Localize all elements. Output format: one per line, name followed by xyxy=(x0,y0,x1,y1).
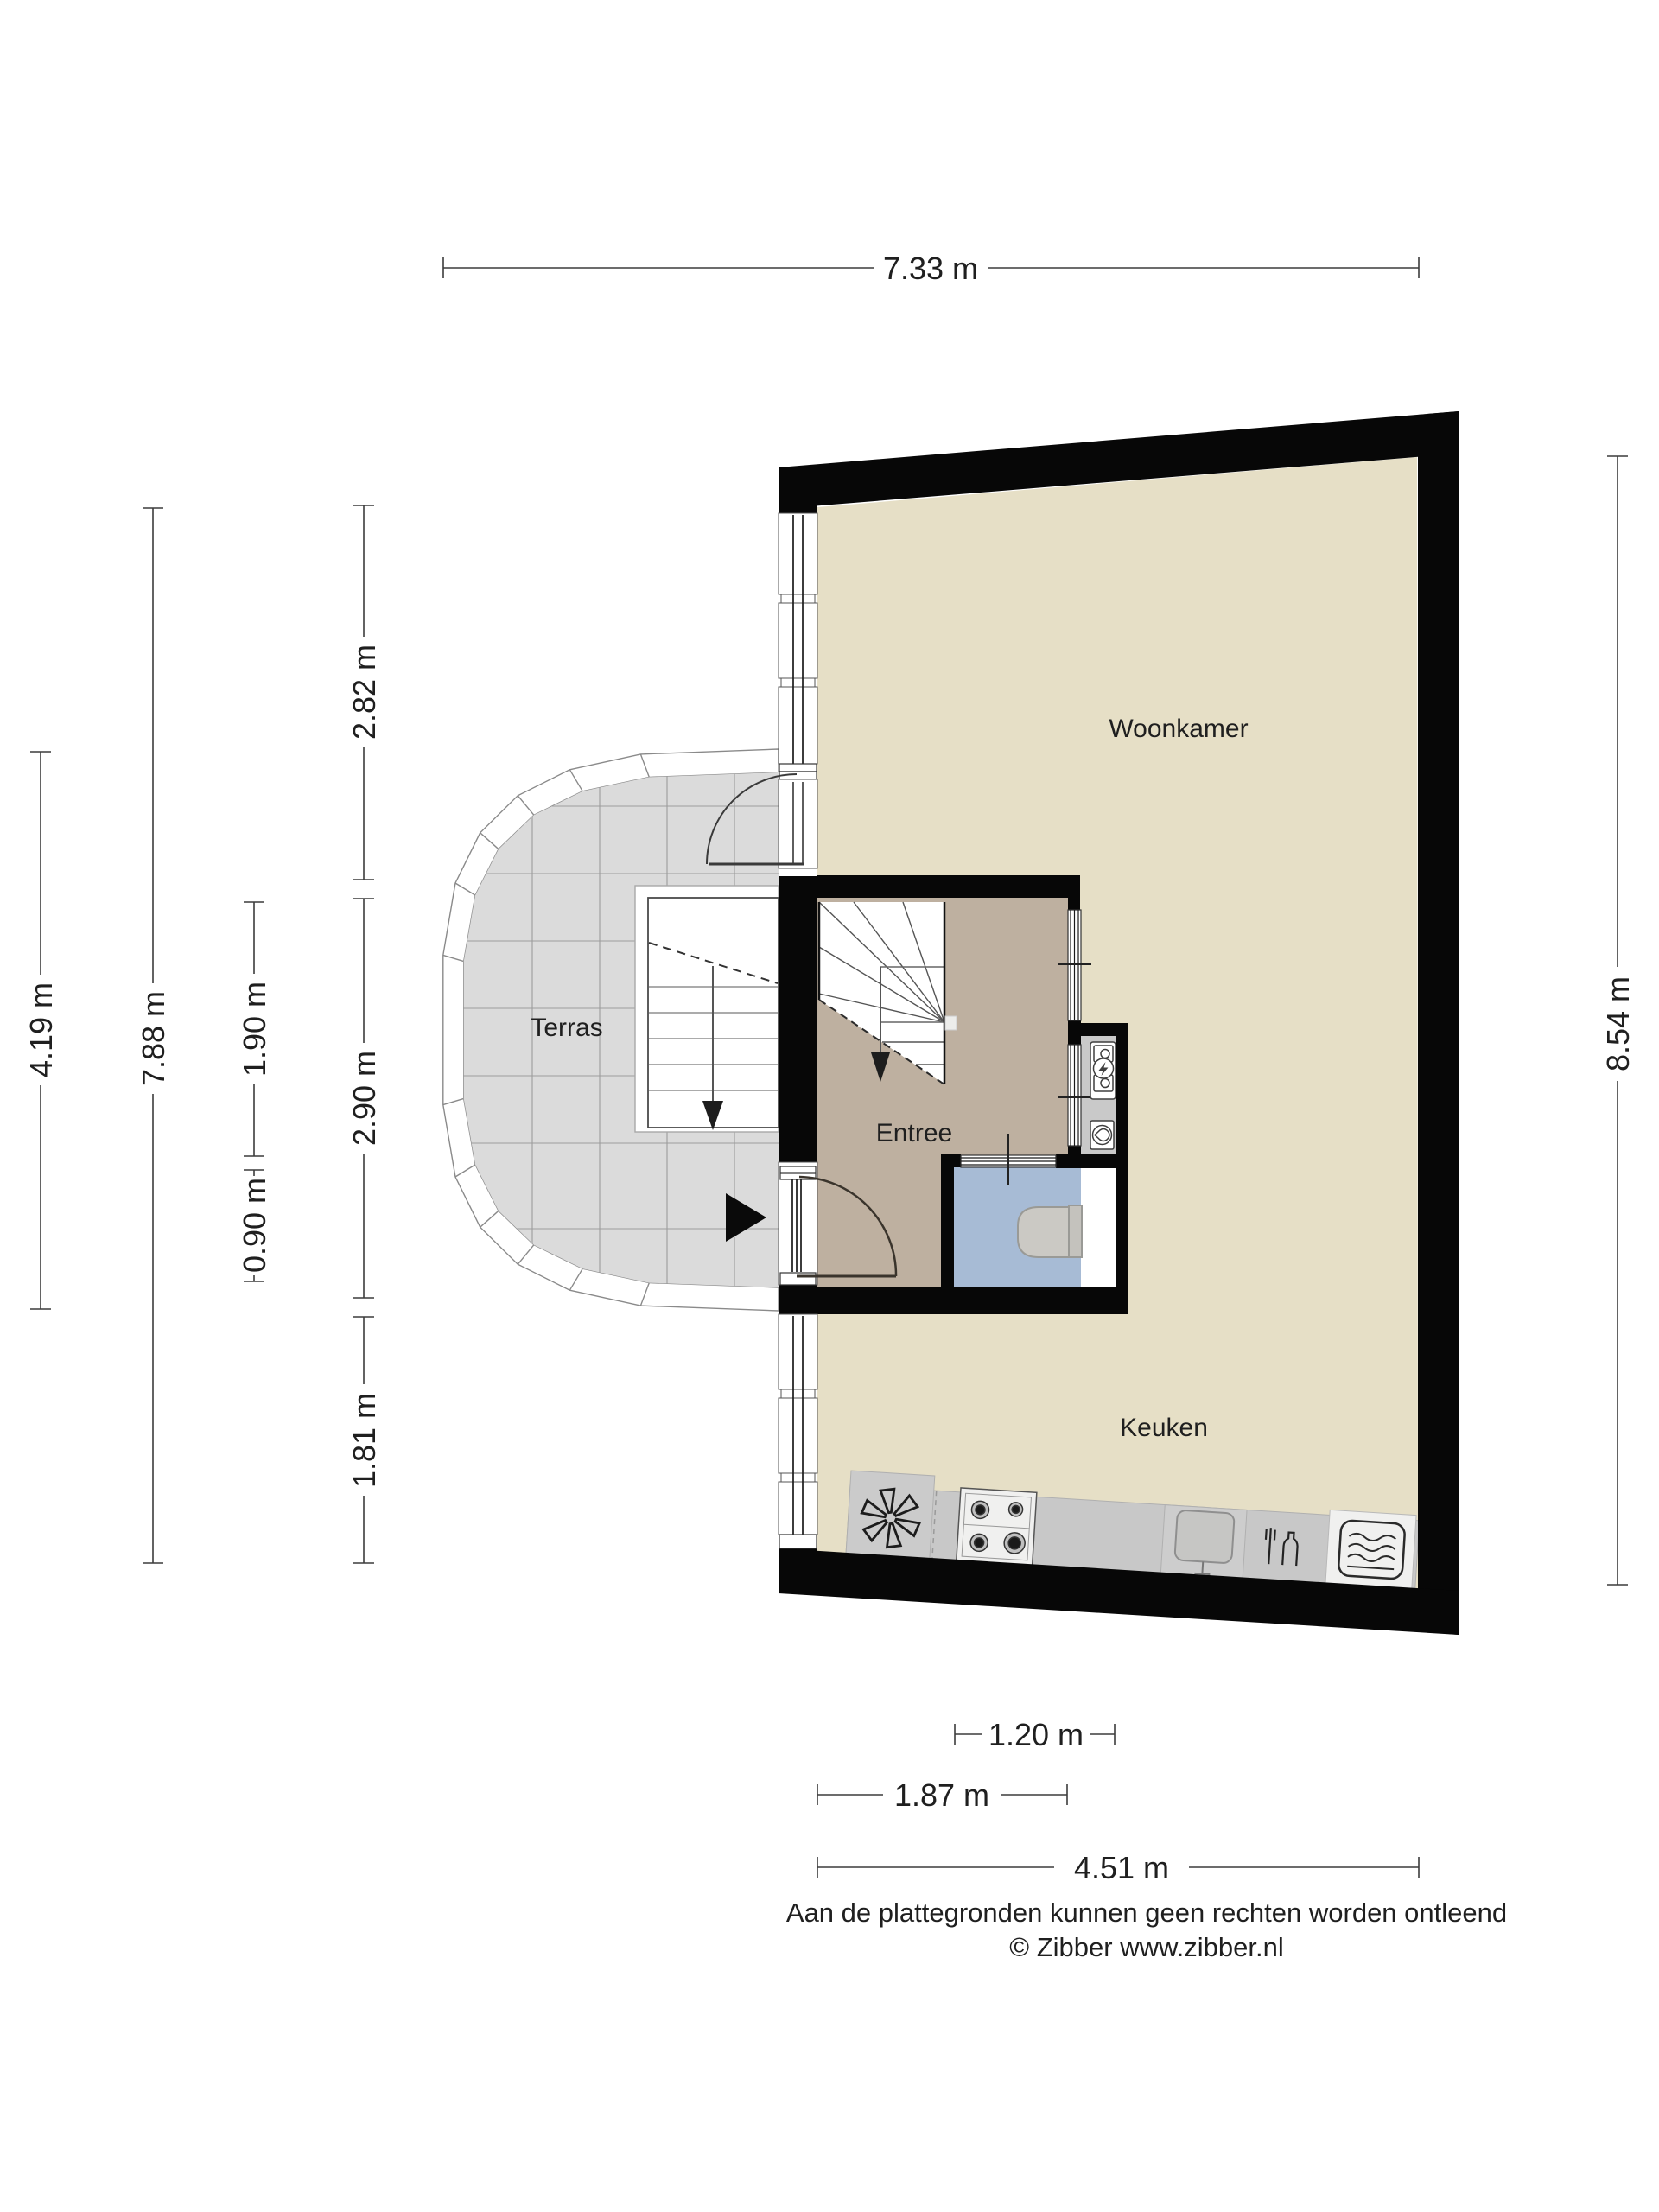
svg-text:1.81 m: 1.81 m xyxy=(346,1393,382,1488)
svg-text:8.54 m: 8.54 m xyxy=(1600,976,1636,1071)
svg-text:Aan de plattegronden kunnen ge: Aan de plattegronden kunnen geen rechten… xyxy=(786,1897,1507,1928)
svg-text:4.19 m: 4.19 m xyxy=(23,982,59,1077)
svg-text:Woonkamer: Woonkamer xyxy=(1109,715,1248,743)
svg-text:© Zibber www.zibber.nl: © Zibber www.zibber.nl xyxy=(1009,1932,1283,1962)
svg-text:1.90 m: 1.90 m xyxy=(237,982,272,1077)
svg-text:2.82 m: 2.82 m xyxy=(346,645,382,740)
svg-text:2.90 m: 2.90 m xyxy=(346,1051,382,1146)
svg-text:4.51 m: 4.51 m xyxy=(1074,1850,1169,1885)
svg-text:Entree: Entree xyxy=(876,1119,952,1147)
svg-text:7.88 m: 7.88 m xyxy=(136,991,171,1086)
svg-text:Terras: Terras xyxy=(531,1014,602,1042)
svg-text:0.90 m: 0.90 m xyxy=(237,1178,272,1273)
svg-text:1.87 m: 1.87 m xyxy=(894,1777,989,1813)
svg-text:1.20 m: 1.20 m xyxy=(988,1717,1084,1752)
svg-text:7.33 m: 7.33 m xyxy=(883,251,978,286)
svg-text:Keuken: Keuken xyxy=(1120,1414,1208,1442)
